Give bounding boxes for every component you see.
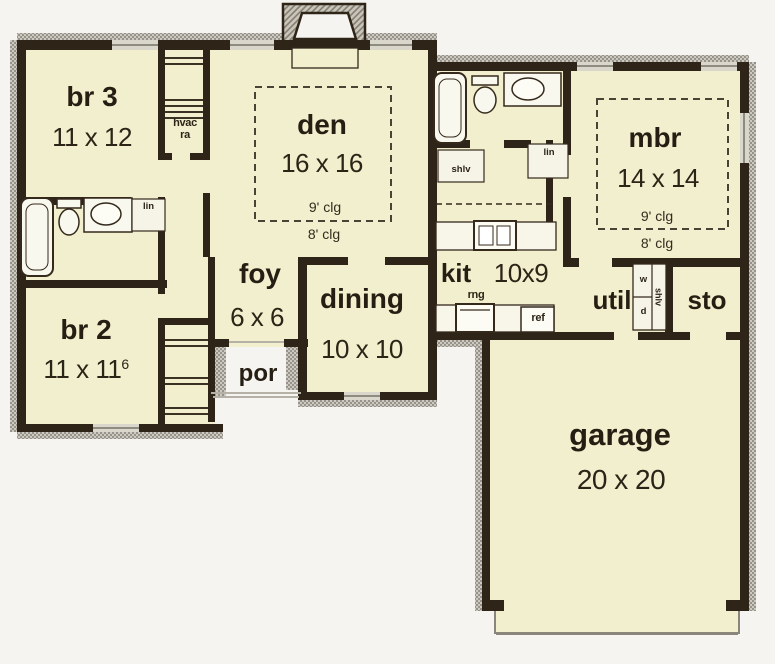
sink [512,78,544,100]
linen-closet [528,144,568,178]
window [701,62,737,71]
sink-basin [497,226,510,245]
window [112,40,158,50]
floor-plan-drawing [0,0,775,664]
sink [91,203,121,225]
refrigerator [521,307,554,332]
garage-door-sill [496,632,738,635]
utility-closet [633,264,666,330]
toilet-bowl [474,87,496,113]
toilet-bowl [59,209,79,235]
window [230,40,274,50]
window [740,113,749,163]
fireplace-chimney [283,4,365,44]
window [370,40,412,50]
firebox [294,13,356,39]
range [456,304,494,332]
window [344,392,380,400]
toilet-tank [472,76,498,85]
window [93,424,139,432]
floor-plan: br 3 11 x 12 den 16 x 16 9' clg 8' clg h… [0,0,775,664]
pantry-shelves [438,150,484,182]
sink-basin [479,226,493,245]
toilet-tank [57,199,81,208]
linen-closet [132,199,165,231]
front-door-threshold [229,341,284,343]
window [577,62,613,71]
hearth [292,48,358,68]
